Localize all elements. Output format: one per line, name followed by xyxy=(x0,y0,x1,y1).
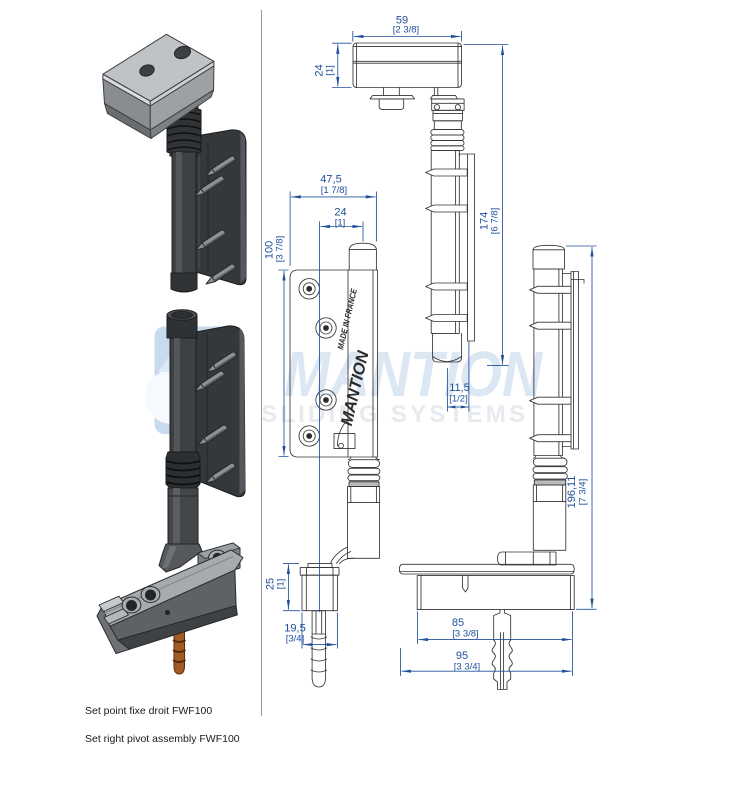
svg-text:[3/4]: [3/4] xyxy=(286,634,305,645)
svg-text:[2 3/8]: [2 3/8] xyxy=(393,25,419,36)
svg-text:[6 7/8]: [6 7/8] xyxy=(490,208,501,234)
svg-text:85: 85 xyxy=(452,617,464,629)
svg-text:[3 3/8]: [3 3/8] xyxy=(452,629,478,640)
svg-text:[3 7/8]: [3 7/8] xyxy=(275,236,286,262)
svg-text:[1 7/8]: [1 7/8] xyxy=(321,185,347,196)
svg-text:[1]: [1] xyxy=(325,65,336,76)
svg-text:[1]: [1] xyxy=(276,579,287,590)
svg-text:47,5: 47,5 xyxy=(320,174,341,186)
svg-text:[1/2]: [1/2] xyxy=(449,394,468,405)
svg-text:Set point fixe droit FWF100: Set point fixe droit FWF100 xyxy=(85,705,212,717)
svg-text:SLIDING SYSTEMS: SLIDING SYSTEMS xyxy=(261,401,529,428)
svg-text:MANTION: MANTION xyxy=(284,338,544,410)
svg-text:11,5: 11,5 xyxy=(449,382,470,394)
svg-text:Set right pivot assembly FWF10: Set right pivot assembly FWF100 xyxy=(85,733,240,745)
svg-text:95: 95 xyxy=(456,650,468,662)
svg-text:[7 3/4]: [7 3/4] xyxy=(578,479,589,505)
svg-text:196,11: 196,11 xyxy=(566,476,578,509)
